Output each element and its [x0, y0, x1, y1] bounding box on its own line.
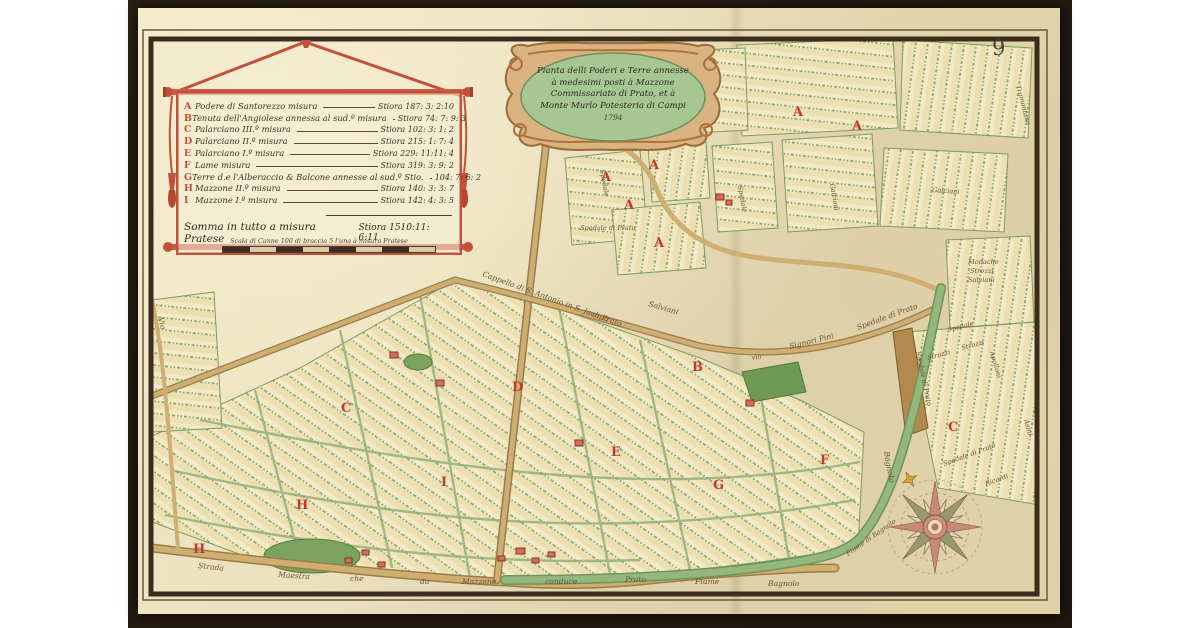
title-date: 1794	[513, 112, 713, 124]
leader-line	[287, 190, 378, 191]
leader-line	[290, 154, 370, 155]
legend-name: Palarciano III.º misura	[195, 124, 291, 134]
map-label: Monache	[967, 258, 999, 266]
legend-name: Palarciano II.º misura	[195, 136, 288, 146]
parcel-letter: A	[851, 119, 863, 134]
parcel-letter: A	[653, 236, 665, 251]
legend-value: Stiora 319: 3: 9: 2	[381, 161, 454, 170]
map-label: Strozzi	[970, 267, 993, 275]
road-label: che	[350, 574, 364, 583]
legend-letter: C	[184, 125, 195, 134]
parcel-letter: H	[296, 498, 308, 513]
map-label: Spedale di Prato	[580, 224, 635, 232]
legend-letter: F	[184, 161, 195, 170]
legend-row: D Palarciano II.º misura Stiora 215: 1: …	[184, 134, 454, 146]
legend-value: Stiora 102: 3: 1: 2	[381, 125, 454, 134]
leader-line	[393, 119, 395, 120]
parcel-letter: H	[193, 542, 205, 557]
parcel-letter: D	[512, 380, 523, 395]
legend-letter: G	[184, 173, 192, 182]
leader-line	[430, 178, 432, 179]
page-number: 9	[992, 36, 1005, 60]
river-label: Bagnolo	[767, 579, 800, 588]
scale-bar	[222, 246, 436, 253]
road-label: Mazzone	[461, 577, 497, 586]
legend-panel: A Podere di Santorezzo misura Stiora 187…	[176, 91, 462, 255]
legend-value: Stiora 140: 3: 3: 7	[381, 184, 454, 193]
title-line: Monte Murlo Potesteria di Campi	[513, 101, 713, 113]
legend-letter: I	[184, 196, 195, 205]
legend-letter: H	[184, 184, 195, 193]
north-star-icon	[899, 469, 921, 491]
leader-line	[297, 131, 378, 132]
legend-letter: B	[184, 114, 192, 123]
legend-rows: A Podere di Santorezzo misura Stiora 187…	[184, 99, 454, 205]
legend-name: Mazzone I.º misura	[195, 195, 277, 205]
river-label: Bagnolo	[882, 450, 897, 484]
total-divider	[326, 215, 452, 216]
map-label: Salviani	[968, 276, 995, 284]
legend-name: Palarciano I.º misura	[195, 148, 284, 158]
parcel-letter: A	[600, 170, 612, 185]
parcel-letter: E	[611, 445, 621, 460]
parcel-letter: A	[623, 198, 635, 213]
parcel-letter: G	[713, 478, 724, 493]
road-label: conduce	[545, 577, 578, 586]
parcel-letter: A	[792, 105, 804, 120]
road-label: Prato	[624, 575, 646, 584]
legend-letter: D	[184, 137, 195, 146]
legend-letter: E	[184, 149, 195, 158]
title-line: à medesimi posti à Mazzone	[513, 78, 713, 90]
title-line: Commissariato di Prato, et à	[513, 89, 713, 101]
parcel-letter: I	[441, 475, 447, 490]
legend-row: H Mazzone II.º misura Stiora 140: 3: 3: …	[184, 182, 454, 194]
leader-line	[283, 202, 377, 203]
legend-value: Stiora 229: 11:11: 4	[373, 149, 454, 158]
leader-line	[323, 107, 375, 108]
title-line: Pianta delli Poderi e Terre annesse	[513, 66, 713, 78]
parcel-letter: C	[341, 401, 351, 416]
legend-name: Mazzone II.º misura	[195, 183, 281, 193]
legend-value: Stiora 187: 3: 2:10	[378, 102, 454, 111]
legend-row: C Palarciano III.º misura Stiora 102: 3:…	[184, 123, 454, 135]
river-label: Fiume	[694, 577, 720, 586]
map-label: Salviani	[647, 299, 680, 316]
leader-line	[256, 166, 377, 167]
map-label: via	[751, 352, 762, 362]
scale-caption: Scala di Canne 100 di braccia 5 l'una à …	[178, 237, 460, 245]
legend-value: Stiora 74: 7: 9: 3	[398, 114, 466, 123]
legend-value: Stiora 142: 4: 3: 5	[381, 196, 454, 205]
parcel-letter: B	[692, 360, 703, 375]
legend-row: A Podere di Santorezzo misura Stiora 187…	[184, 99, 454, 111]
title-cartouche: Pianta delli Poderi e Terre annesse à me…	[498, 40, 728, 160]
legend-row: E Palarciano I.º misura Stiora 229: 11:1…	[184, 146, 454, 158]
road-label: Maestra	[277, 570, 311, 581]
scanned-map-page: Via Cappella di S. Antonio in S. Jacopo …	[0, 0, 1200, 628]
legend-name: Podere di Santorezzo misura	[195, 101, 317, 111]
parcel-letter: A	[648, 158, 660, 173]
legend-value: 104: 7: 6: 2	[435, 173, 481, 182]
legend-row: F Lame misura Stiora 319: 3: 9: 2	[184, 158, 454, 170]
legend-row: B Tenuta dell'Angiolese annessa al sud.º…	[184, 111, 454, 123]
legend-tapestry: A Podere di Santorezzo misura Stiora 187…	[163, 38, 473, 260]
legend-name: Terre d.e l'Alberaccio & Balcone annesse…	[192, 172, 424, 182]
leader-line	[294, 143, 378, 144]
legend-row: G Terre d.e l'Alberaccio & Balcone annes…	[184, 170, 454, 182]
legend-name: Lame misura	[195, 160, 250, 170]
legend-letter: A	[184, 102, 195, 111]
road-label: Strada	[198, 561, 225, 573]
parcel-letter: C	[948, 420, 958, 435]
road-label: da	[420, 577, 430, 586]
parcel-letter: F	[820, 453, 830, 468]
cartouche-text: Pianta delli Poderi e Terre annesse à me…	[513, 66, 713, 124]
legend-name: Tenuta dell'Angiolese annessa al sud.º m…	[192, 113, 387, 123]
legend-row: I Mazzone I.º misura Stiora 142: 4: 3: 5	[184, 193, 454, 205]
legend-value: Stiora 215: 1: 7: 4	[381, 137, 454, 146]
